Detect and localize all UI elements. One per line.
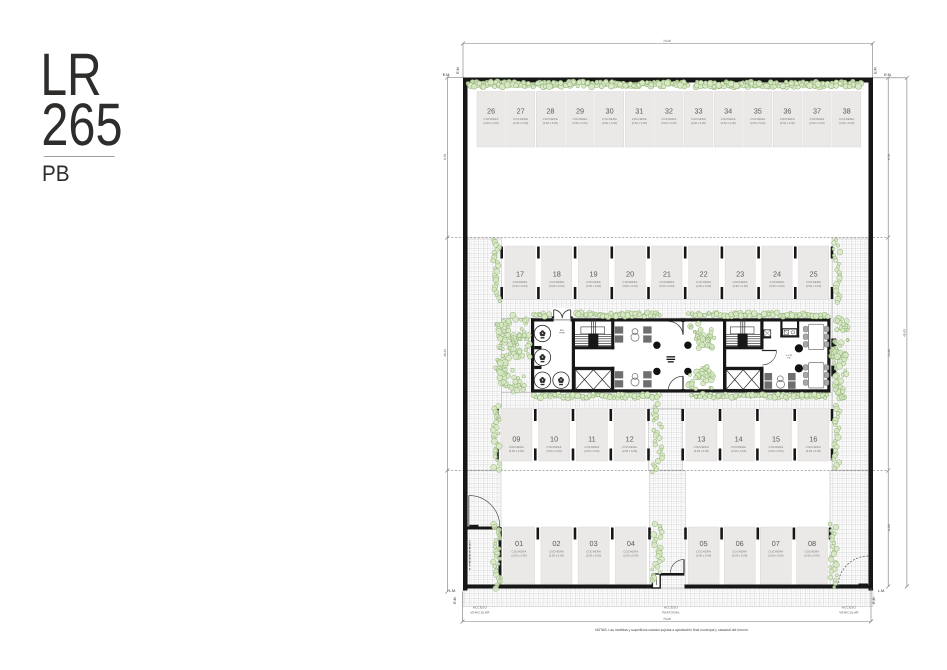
svg-text:(2.50 x 5.00): (2.50 x 5.00) [586,285,601,288]
svg-text:COCHERA: COCHERA [696,281,711,284]
svg-text:(2.50 x 5.00): (2.50 x 5.00) [721,122,736,125]
svg-text:COCHERA: COCHERA [769,446,784,449]
svg-text:NOTAS: Las medidas y superfici: NOTAS: Las medidas y superficies estarán… [595,628,749,632]
svg-text:COCHERA: COCHERA [549,551,564,554]
svg-text:COCHERA: COCHERA [839,118,854,121]
svg-text:(2.50 x 5.00): (2.50 x 5.00) [659,285,674,288]
svg-text:(2.50 x 5.00): (2.50 x 5.00) [513,122,528,125]
svg-text:(2.50 x 5.00): (2.50 x 5.00) [622,450,637,453]
svg-text:ACCESO VEHICULAR: ACCESO VEHICULAR [469,540,472,565]
svg-text:35: 35 [754,107,762,116]
svg-text:74.26: 74.26 [663,617,671,621]
svg-text:(2.50 x 5.00): (2.50 x 5.00) [769,285,784,288]
svg-text:COCHERA: COCHERA [509,446,524,449]
svg-text:COCHERA: COCHERA [733,281,748,284]
svg-text:26: 26 [487,107,495,116]
svg-text:(2.50 x 5.00): (2.50 x 5.00) [694,450,709,453]
svg-text:36: 36 [783,107,791,116]
svg-text:COCHERA: COCHERA [513,118,528,121]
svg-text:COCHERA: COCHERA [586,281,601,284]
svg-text:(2.50 x 5.00): (2.50 x 5.00) [780,122,795,125]
svg-text:(2.50 x 5.00): (2.50 x 5.00) [809,122,824,125]
svg-text:38: 38 [843,107,851,116]
svg-text:07: 07 [772,539,780,548]
svg-text:12: 12 [626,435,634,444]
svg-text:COCHERA: COCHERA [696,551,711,554]
svg-text:(2.50 x 5.00): (2.50 x 5.00) [731,450,746,453]
svg-text:14: 14 [735,435,743,444]
svg-text:PARK: PARK [559,332,565,335]
svg-text:(2.50 x 5.00): (2.50 x 5.00) [512,555,527,558]
svg-text:(2.50 x 5.00): (2.50 x 5.00) [509,450,524,453]
svg-text:COCHERA: COCHERA [721,118,736,121]
svg-text:45.43: 45.43 [443,349,447,357]
svg-text:(2.50 x 5.00): (2.50 x 5.00) [696,285,711,288]
svg-text:23: 23 [736,270,744,279]
svg-text:05: 05 [700,539,708,548]
svg-text:VEHICULAR: VEHICULAR [839,611,859,615]
svg-text:COCHERA: COCHERA [810,118,825,121]
svg-text:COCHERA: COCHERA [806,281,821,284]
svg-text:24: 24 [773,270,781,279]
svg-text:17: 17 [516,270,524,279]
svg-text:01: 01 [515,539,523,548]
svg-text:(2.50 x 5.00): (2.50 x 5.00) [732,555,747,558]
svg-text:COCHERA: COCHERA [623,551,638,554]
svg-text:E.M.: E.M. [456,66,460,74]
svg-text:18: 18 [553,270,561,279]
svg-text:ACCESO: ACCESO [664,606,679,610]
svg-text:74.26: 74.26 [663,39,671,43]
svg-text:COCHERA: COCHERA [732,551,747,554]
svg-text:16: 16 [809,435,817,444]
svg-text:04: 04 [627,539,635,548]
svg-text:03: 03 [590,539,598,548]
svg-text:25: 25 [810,270,818,279]
svg-text:COCHERA: COCHERA [547,446,562,449]
svg-text:(2.50 x 5.00): (2.50 x 5.00) [586,555,601,558]
svg-text:21: 21 [663,270,671,279]
svg-text:COCHERA: COCHERA [623,281,638,284]
svg-text:COCHERA: COCHERA [770,281,785,284]
svg-text:L.M.: L.M. [449,589,456,593]
svg-text:COCHERA: COCHERA [622,446,637,449]
svg-text:(2.50 x 5.00): (2.50 x 5.00) [806,285,821,288]
svg-text:15: 15 [772,435,780,444]
svg-text:COCHERA: COCHERA [549,281,564,284]
svg-text:ACCESO: ACCESO [473,606,488,610]
svg-text:(2.50 x 5.00): (2.50 x 5.00) [543,122,558,125]
svg-text:E.M.: E.M. [443,73,451,77]
svg-text:(2.50 x 5.00): (2.50 x 5.00) [547,450,562,453]
svg-text:(2.50 x 5.00): (2.50 x 5.00) [602,122,617,125]
svg-text:(2.50 x 5.00): (2.50 x 5.00) [839,122,854,125]
svg-text:COCHERA: COCHERA [694,446,709,449]
svg-text:02: 02 [552,539,560,548]
svg-text:22: 22 [700,270,708,279]
svg-text:COCHERA: COCHERA [584,446,599,449]
svg-text:E.M.: E.M. [874,66,878,74]
svg-text:COCHERA: COCHERA [543,118,558,121]
svg-text:19: 19 [589,270,597,279]
svg-text:30: 30 [606,107,614,116]
svg-text:(2.50 x 5.00): (2.50 x 5.00) [733,285,748,288]
svg-text:06: 06 [736,539,744,548]
svg-text:8.78: 8.78 [887,154,891,160]
svg-text:(2.50 x 5.00): (2.50 x 5.00) [750,122,765,125]
svg-text:(2.50 x 5.00): (2.50 x 5.00) [549,555,564,558]
svg-text:COCHERA: COCHERA [750,118,765,121]
svg-text:COCHERA: COCHERA [602,118,617,121]
svg-text:COCHERA: COCHERA [512,551,527,554]
svg-text:COCHERA: COCHERA [632,118,647,121]
svg-text:(2.50 x 5.00): (2.50 x 5.00) [549,285,564,288]
svg-text:COCHERA: COCHERA [768,551,783,554]
svg-text:COCHERA: COCHERA [731,446,746,449]
svg-text:COCHERA: COCHERA [806,446,821,449]
svg-text:(2.50 x 5.00): (2.50 x 5.00) [806,450,821,453]
svg-text:(2.50 x 5.00): (2.50 x 5.00) [696,555,711,558]
svg-text:ACCESO: ACCESO [842,606,857,610]
svg-text:COCHERA: COCHERA [586,551,601,554]
svg-text:(2.50 x 5.00): (2.50 x 5.00) [691,122,706,125]
svg-text:BICI: BICI [560,329,565,332]
svg-text:20: 20 [626,270,634,279]
svg-text:23.46: 23.46 [887,349,891,357]
svg-text:COCHERA: COCHERA [780,118,795,121]
svg-text:COCHERA: COCHERA [691,118,706,121]
svg-text:(2.50 x 5.00): (2.50 x 5.00) [768,555,783,558]
svg-text:10: 10 [550,435,558,444]
svg-text:(2.50 x 5.00): (2.50 x 5.00) [623,285,638,288]
svg-text:(2.50 x 5.00): (2.50 x 5.00) [584,450,599,453]
svg-text:COCHERA: COCHERA [513,281,528,284]
svg-text:11: 11 [588,435,596,444]
svg-text:S.U.M.: S.U.M. [786,354,793,357]
svg-text:29: 29 [576,107,584,116]
svg-text:(2.50 x 5.00): (2.50 x 5.00) [632,122,647,125]
svg-text:08: 08 [808,539,816,548]
svg-text:(2.50 x 5.00): (2.50 x 5.00) [804,555,819,558]
svg-text:27: 27 [517,107,525,116]
svg-text:(2.50 x 5.00): (2.50 x 5.00) [484,122,499,125]
svg-text:09: 09 [512,435,520,444]
svg-text:(2.50 x 5.00): (2.50 x 5.00) [768,450,783,453]
svg-text:33: 33 [694,107,702,116]
svg-text:E.M.: E.M. [884,73,892,77]
svg-text:32: 32 [665,107,673,116]
svg-text:45.43: 45.43 [903,329,907,337]
svg-text:E.M.: E.M. [453,596,457,604]
svg-text:L.M.: L.M. [878,589,885,593]
svg-text:COCHERA: COCHERA [805,551,820,554]
svg-text:11.66: 11.66 [887,524,891,532]
svg-text:8.78: 8.78 [443,154,447,160]
svg-text:COCHERA: COCHERA [573,118,588,121]
svg-text:13: 13 [697,435,705,444]
svg-text:(2.50 x 5.00): (2.50 x 5.00) [512,285,527,288]
svg-text:(2.50 x 5.00): (2.50 x 5.00) [572,122,587,125]
svg-text:(2.50 x 5.00): (2.50 x 5.00) [623,555,638,558]
svg-text:COCHERA: COCHERA [484,118,499,121]
svg-text:PB: PB [42,161,70,186]
svg-text:31: 31 [635,107,643,116]
svg-text:VEHICULAR: VEHICULAR [470,611,490,615]
svg-text:E.M.: E.M. [872,596,876,604]
svg-text:(2.50 x 5.00): (2.50 x 5.00) [661,122,676,125]
svg-text:P.B.: P.B. [787,356,791,359]
svg-text:37: 37 [813,107,821,116]
svg-text:PEATONAL: PEATONAL [662,611,680,615]
svg-text:265: 265 [41,91,122,158]
svg-text:28: 28 [546,107,554,116]
svg-text:34: 34 [724,107,732,116]
svg-text:COCHERA: COCHERA [661,118,676,121]
svg-text:COCHERA: COCHERA [659,281,674,284]
